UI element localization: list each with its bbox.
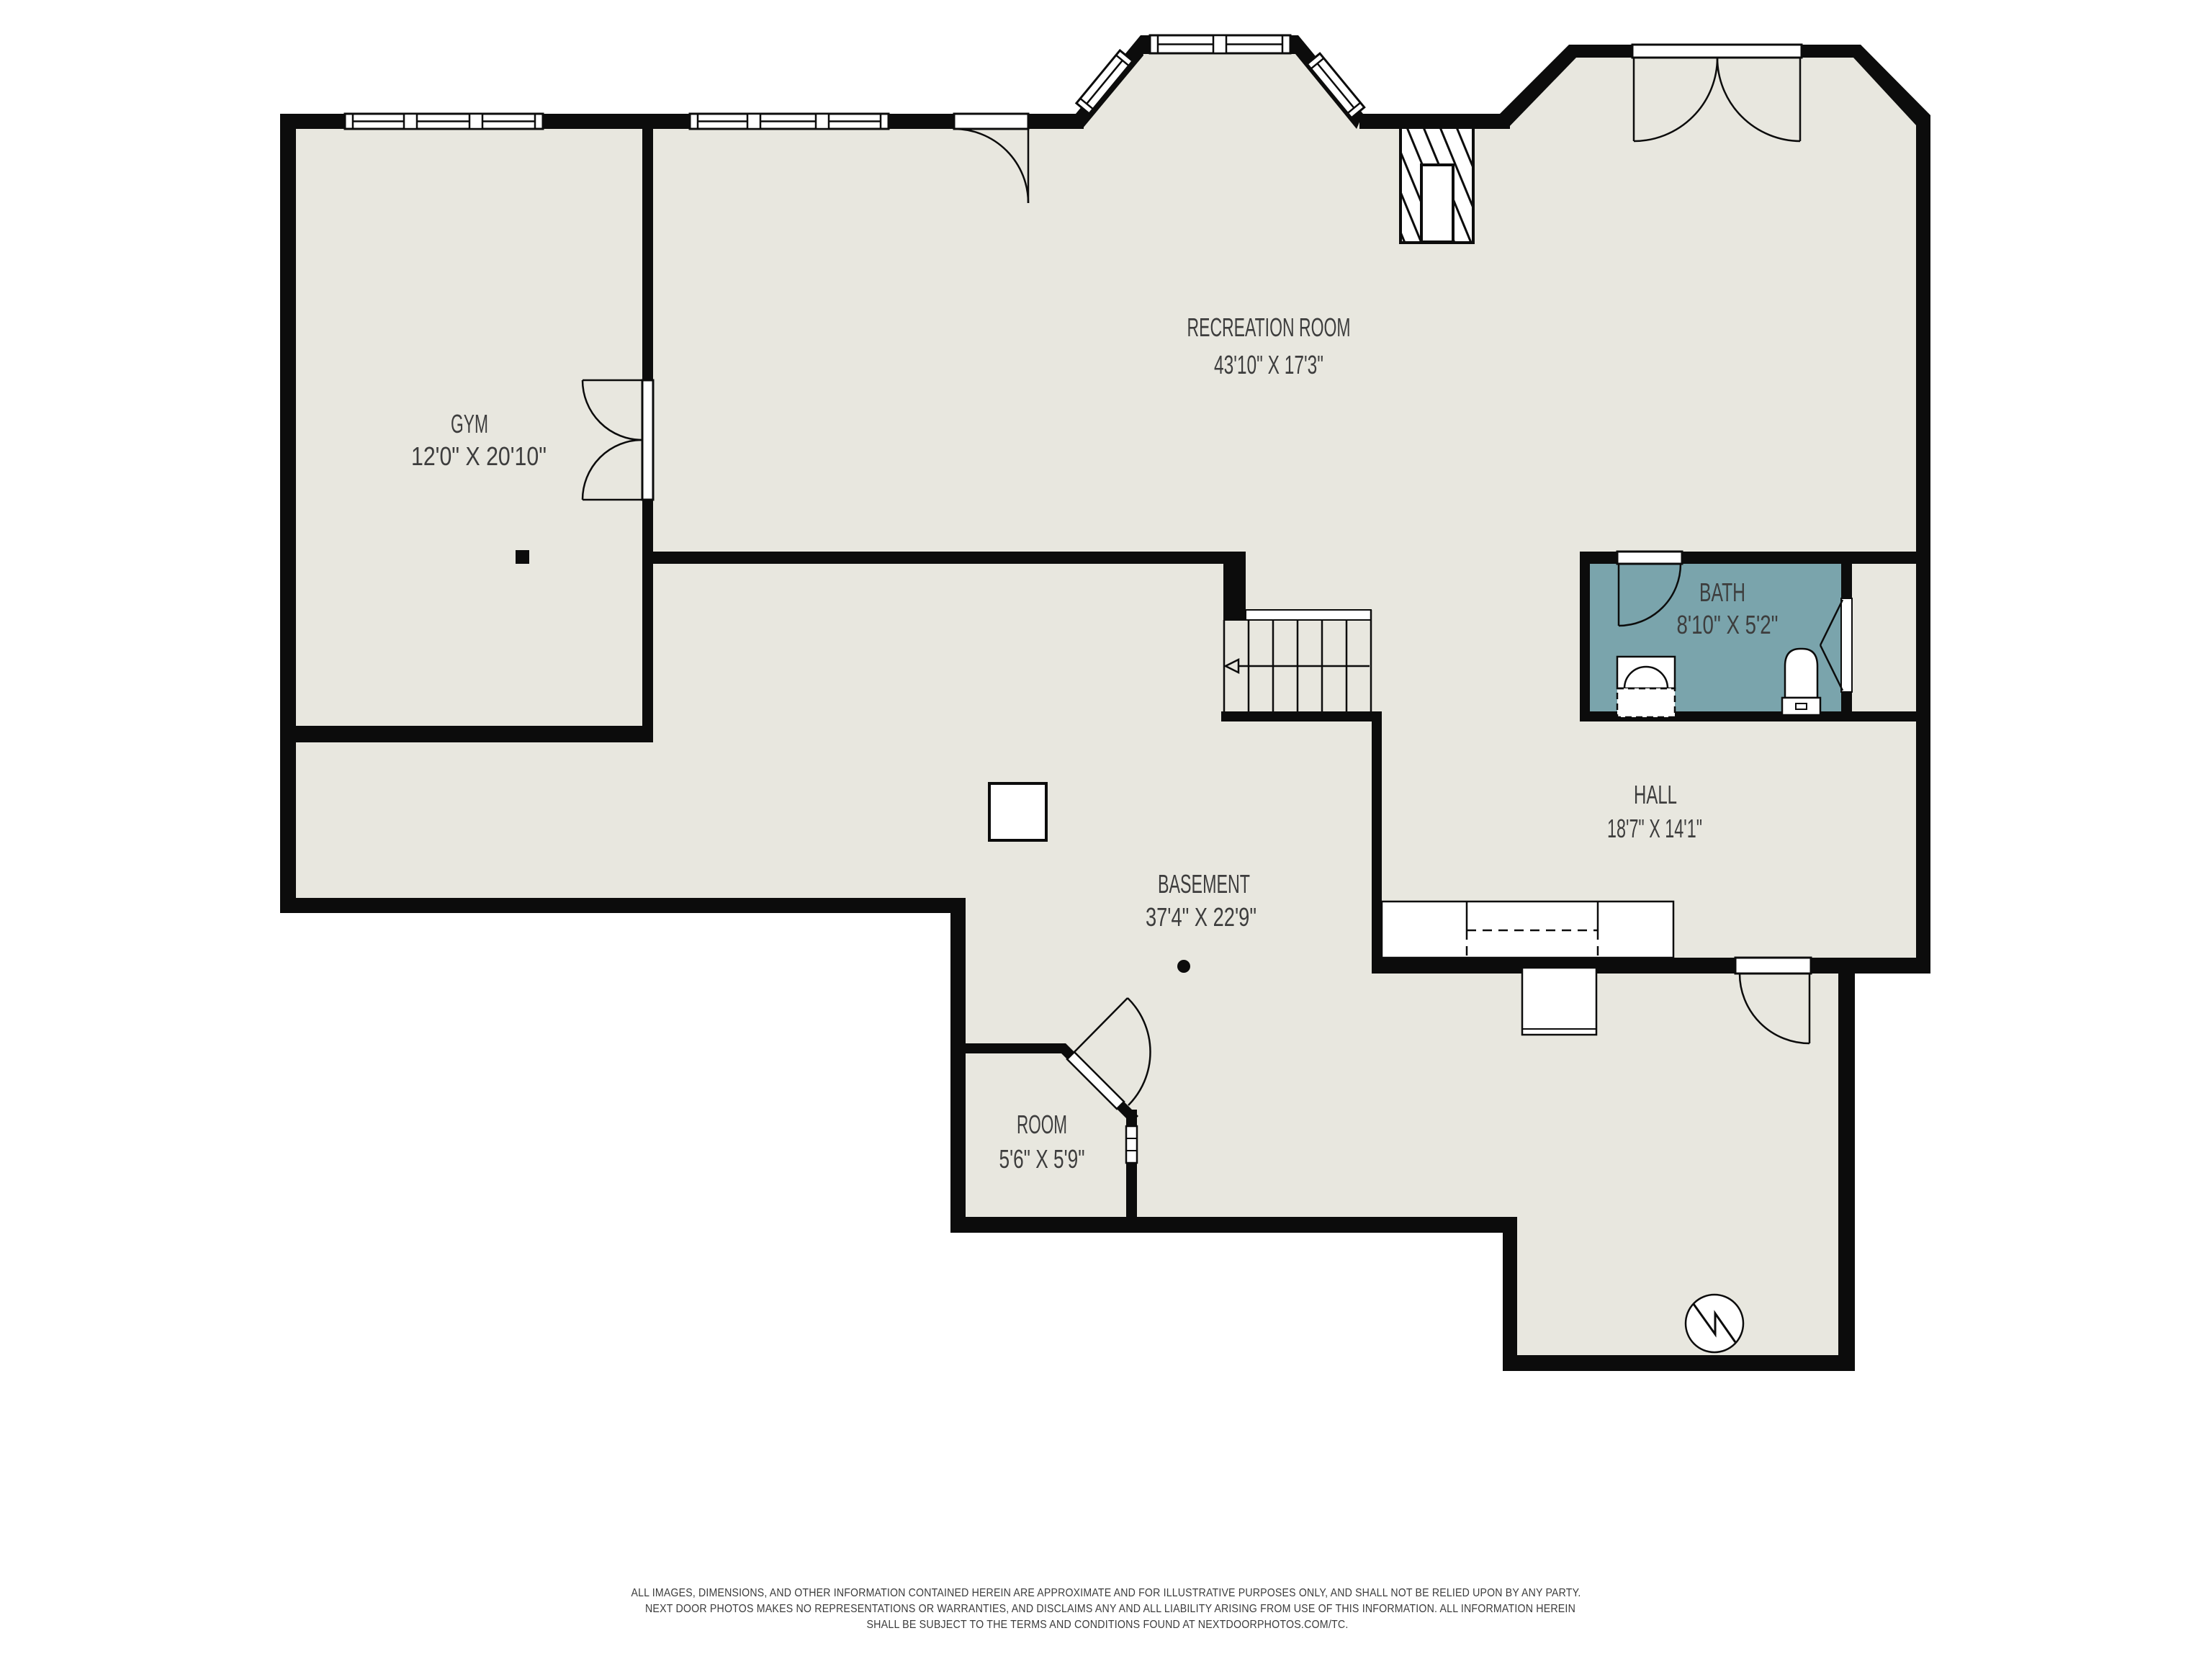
- svg-text:ALL IMAGES, DIMENSIONS, AND OT: ALL IMAGES, DIMENSIONS, AND OTHER INFORM…: [631, 1587, 1581, 1599]
- svg-text:NEXT DOOR PHOTOS MAKES NO REPR: NEXT DOOR PHOTOS MAKES NO REPRESENTATION…: [645, 1603, 1575, 1615]
- svg-text:SHALL BE SUBJECT TO THE TERMS: SHALL BE SUBJECT TO THE TERMS AND CONDIT…: [867, 1619, 1349, 1631]
- svg-text:RECREATION ROOM: RECREATION ROOM: [1187, 313, 1351, 342]
- svg-text:12'0" X 20'10": 12'0" X 20'10": [411, 441, 547, 471]
- svg-text:BATH: BATH: [1699, 577, 1745, 607]
- svg-text:43'10" X 17'3": 43'10" X 17'3": [1214, 350, 1323, 379]
- svg-text:37'4" X 22'9": 37'4" X 22'9": [1146, 902, 1256, 932]
- svg-text:HALL: HALL: [1634, 780, 1677, 809]
- svg-text:18'7" X 14'1": 18'7" X 14'1": [1607, 814, 1702, 843]
- svg-text:GYM: GYM: [451, 409, 488, 439]
- svg-text:8'10" X 5'2": 8'10" X 5'2": [1677, 610, 1779, 639]
- svg-text:ROOM: ROOM: [1017, 1110, 1067, 1139]
- svg-text:5'6" X 5'9": 5'6" X 5'9": [999, 1144, 1085, 1174]
- svg-text:BASEMENT: BASEMENT: [1158, 869, 1250, 899]
